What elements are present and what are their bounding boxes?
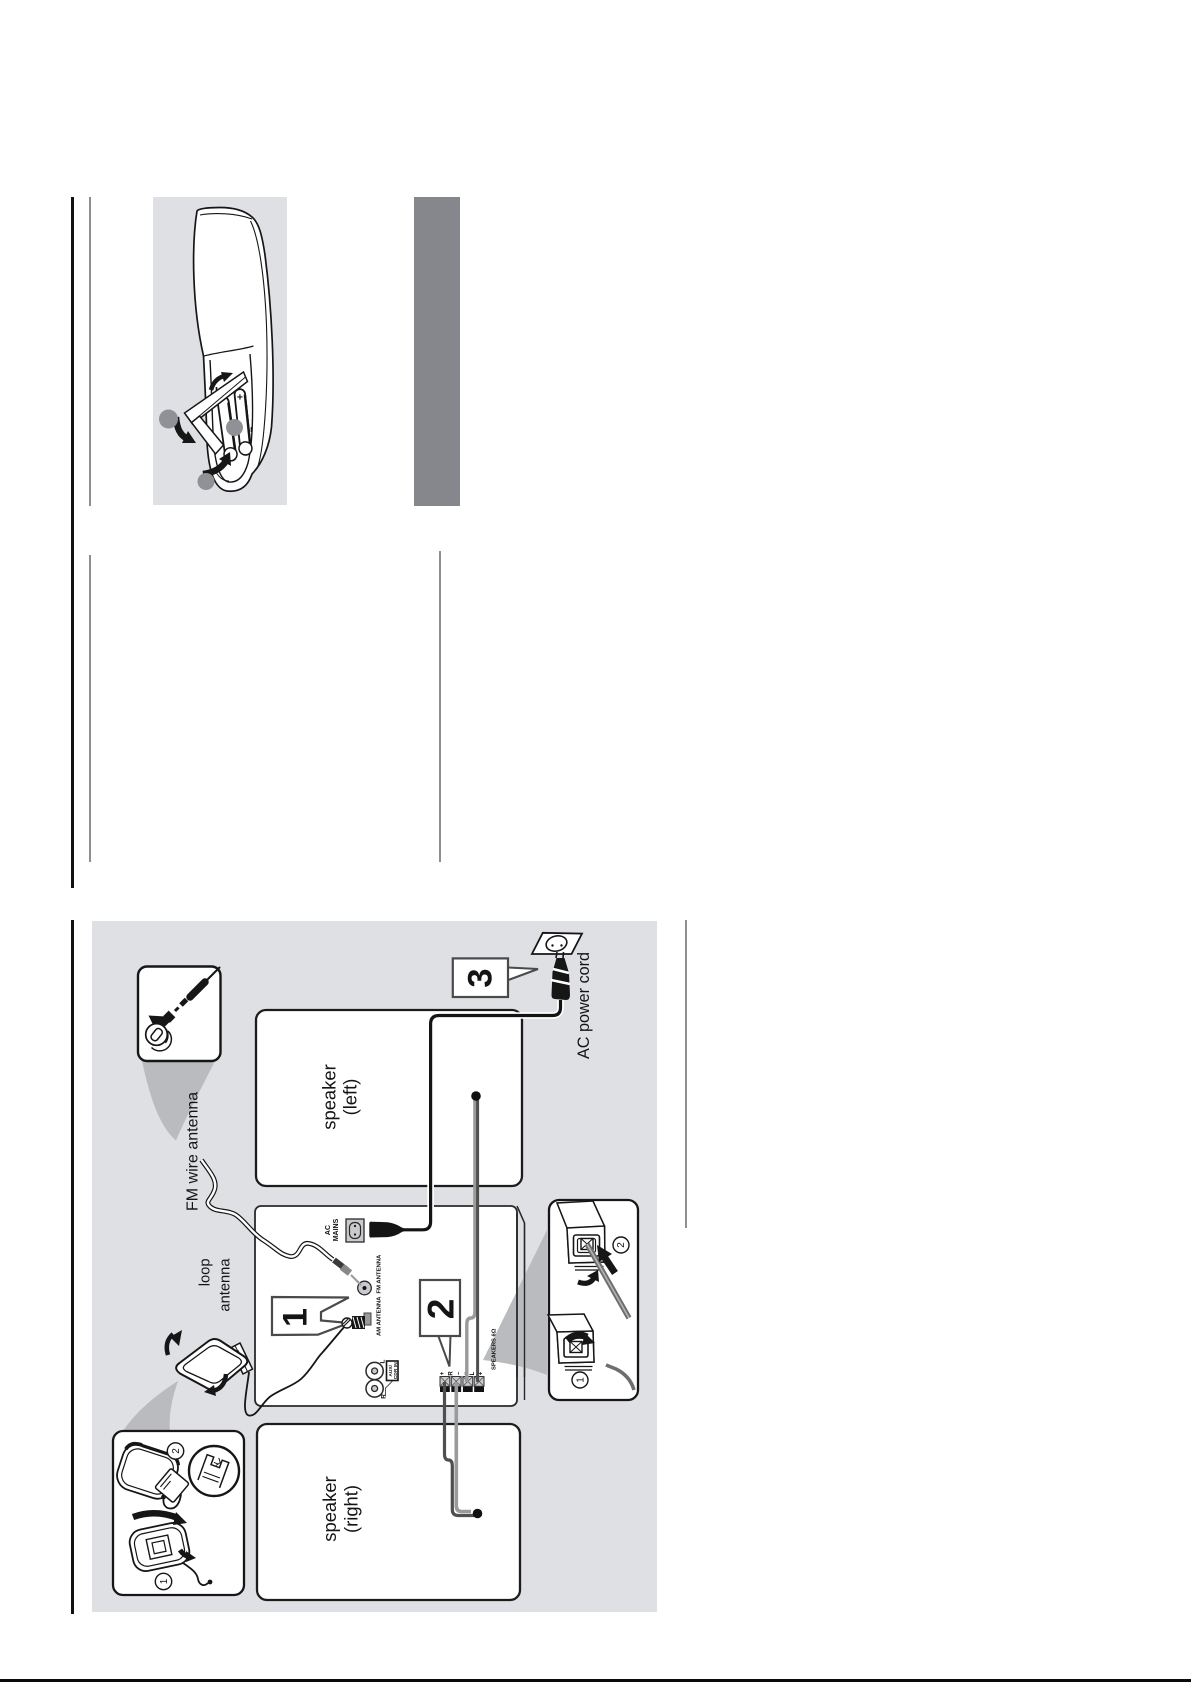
svg-text:R: R [449,1371,455,1376]
svg-text:2: 2 [616,1242,627,1248]
svg-text:−: − [457,1371,463,1375]
svg-text:+: + [440,1371,446,1375]
svg-text:AUX/: AUX/ [388,1364,394,1376]
svg-text:AC: AC [325,1225,332,1235]
svg-text:antenna: antenna [218,1258,234,1312]
svg-text:R: R [381,1394,388,1399]
svg-text:1: 1 [276,1308,314,1327]
svg-text:1: 1 [159,1578,170,1584]
svg-text:2: 2 [420,1299,461,1320]
svg-text:(right): (right) [341,1485,362,1533]
svg-text:SPEAKERS 6Ω: SPEAKERS 6Ω [492,1328,498,1370]
svg-text:(left): (left) [340,1079,361,1116]
svg-text:CDR IN: CDR IN [393,1362,399,1379]
svg-text:+: + [479,1371,485,1375]
svg-text:3: 3 [462,968,500,987]
svg-text:L: L [470,1371,476,1375]
svg-text:+: + [235,394,247,400]
svg-text:MAINS: MAINS [333,1218,340,1241]
svg-text:speaker: speaker [319,1476,340,1541]
svg-text:AC power cord: AC power cord [575,952,593,1059]
svg-text:FM ANTENNA: FM ANTENNA [377,1254,383,1293]
svg-text:speaker: speaker [319,1064,340,1129]
svg-text:2: 2 [171,1448,182,1454]
svg-text:AM ANTENNA: AM ANTENNA [377,1296,383,1336]
svg-text:L: L [380,1360,387,1364]
svg-text:FM wire antenna: FM wire antenna [185,1092,202,1211]
svg-text:1: 1 [576,1377,587,1383]
svg-text:loop: loop [197,1259,213,1287]
